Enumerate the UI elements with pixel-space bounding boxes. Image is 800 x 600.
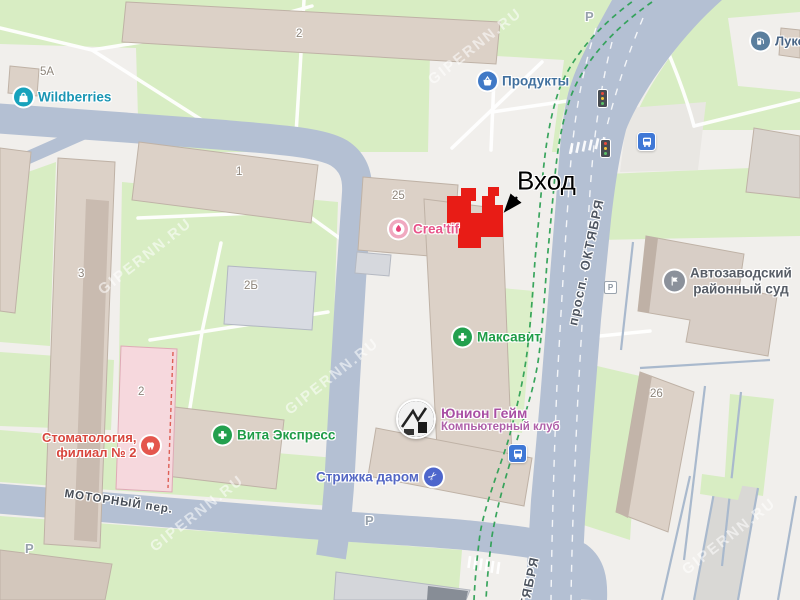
poi-stomatologia[interactable]: Стоматология, филиал № 2 — [42, 431, 160, 461]
parking-label: Р — [365, 513, 374, 528]
poi-wildberries[interactable]: Wildberries — [14, 88, 111, 107]
building-number: 2Б — [244, 280, 258, 292]
poi-union-game[interactable]: Юнион Гейм Компьютерный клуб — [396, 399, 560, 439]
poi-label: Продукты — [502, 74, 569, 89]
parking-sign-icon: Р — [604, 281, 617, 294]
building-number: 5А — [40, 66, 54, 78]
poi-label: Стоматология, филиал № 2 — [42, 431, 136, 461]
beauty-icon — [389, 220, 408, 239]
parking-label: Р — [25, 541, 34, 556]
poi-produkty[interactable]: Продукты — [478, 72, 569, 91]
map-canvas[interactable]: GIPERNN.RU GIPERNN.RU GIPERNN.RU GIPERNN… — [0, 0, 800, 600]
bag-icon — [14, 88, 33, 107]
poi-label: Вита Экспресс — [237, 428, 335, 443]
parking-label: Р — [585, 9, 594, 24]
pharmacy-cross-icon — [213, 426, 232, 445]
building-number: 3 — [78, 268, 84, 280]
building-number: 1 — [236, 166, 242, 178]
bus-stop-icon[interactable] — [508, 444, 527, 463]
building-2-pink — [116, 346, 177, 492]
poi-label: Стрижка даром — [316, 470, 419, 485]
poi-court[interactable]: Автозаводский районный суд — [664, 265, 792, 296]
basket-icon — [478, 72, 497, 91]
poi-strizhka-darom[interactable]: Стрижка даром ✂ — [316, 468, 443, 487]
poi-label: Wildberries — [38, 90, 111, 105]
poi-lukoil[interactable]: Лукойл — [751, 32, 800, 51]
building-number: 25 — [392, 190, 405, 202]
poi-label: Лукойл — [775, 34, 800, 49]
poi-label: Crea'tif — [413, 222, 459, 237]
scissors-icon: ✂ — [424, 468, 443, 487]
building-number: 2 — [138, 386, 144, 398]
photo-logo — [396, 399, 436, 439]
building-vita — [158, 406, 284, 489]
traffic-light-icon — [597, 89, 608, 108]
poi-label: Максавит — [477, 330, 541, 345]
poi-label-group: Юнион Гейм Компьютерный клуб — [441, 405, 560, 433]
pharmacy-cross-icon — [453, 328, 472, 347]
entrance-label: Вход — [517, 166, 576, 197]
poi-maksavit[interactable]: Максавит — [453, 328, 541, 347]
poi-creatif[interactable]: Crea'tif — [389, 220, 459, 239]
traffic-light-icon — [600, 139, 611, 158]
building-number: 2 — [296, 28, 302, 40]
map-tiles — [0, 0, 800, 600]
poi-vita-express[interactable]: Вита Экспресс — [213, 426, 335, 445]
tooth-icon — [141, 437, 160, 456]
bus-stop-icon[interactable] — [637, 132, 656, 151]
flag-icon — [664, 271, 685, 292]
poi-label: Автозаводский районный суд — [690, 265, 792, 296]
building-number: 26 — [650, 388, 663, 400]
fuel-icon — [751, 32, 770, 51]
building-2b — [224, 266, 316, 330]
